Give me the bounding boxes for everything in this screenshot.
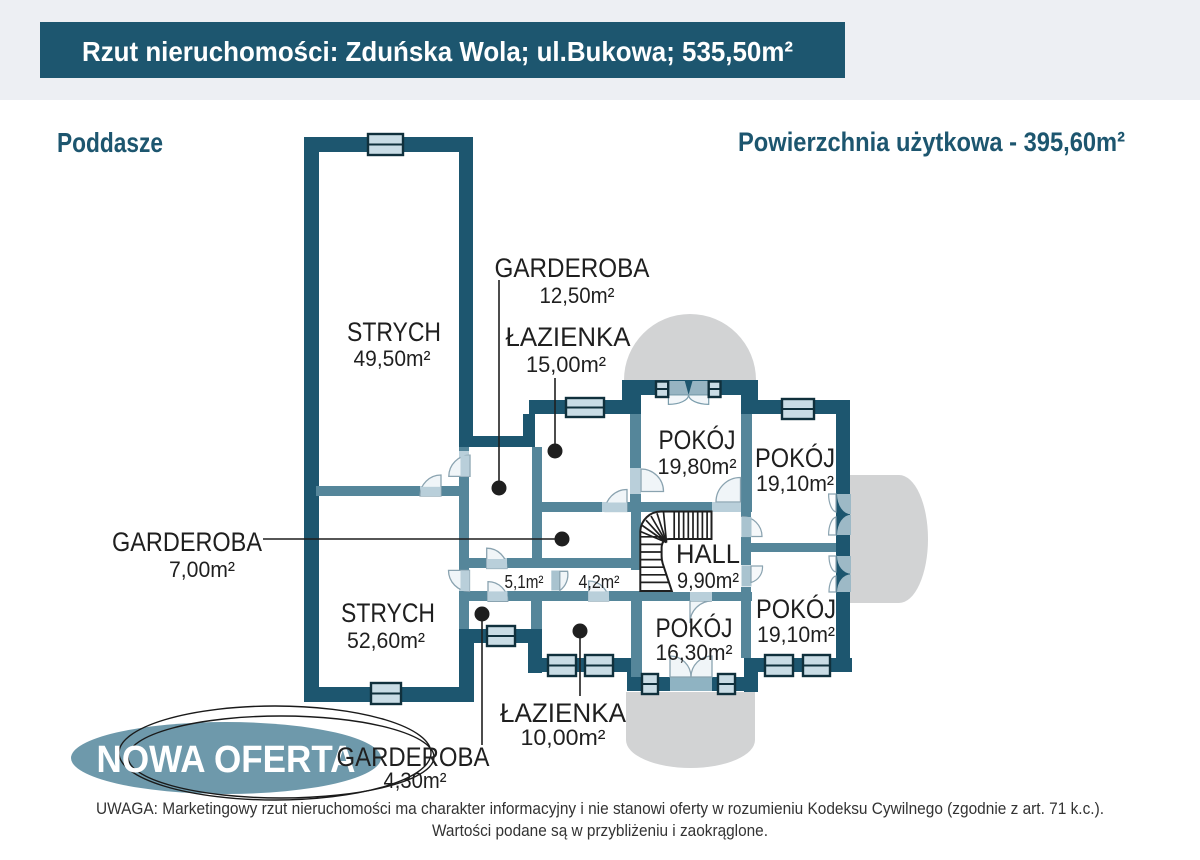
svg-text:HALL: HALL bbox=[676, 539, 740, 569]
svg-text:POKÓJ: POKÓJ bbox=[656, 612, 733, 643]
svg-text:9,90m²: 9,90m² bbox=[677, 568, 739, 593]
svg-text:15,00m²: 15,00m² bbox=[526, 352, 606, 377]
svg-text:NOWA OFERTA: NOWA OFERTA bbox=[97, 739, 356, 781]
svg-text:POKÓJ: POKÓJ bbox=[659, 424, 736, 455]
svg-text:GARDEROBA: GARDEROBA bbox=[495, 253, 650, 283]
svg-text:STRYCH: STRYCH bbox=[347, 317, 441, 347]
svg-text:49,50m²: 49,50m² bbox=[354, 346, 431, 371]
svg-text:POKÓJ: POKÓJ bbox=[755, 442, 835, 473]
svg-text:Poddasze: Poddasze bbox=[57, 127, 163, 158]
svg-text:STRYCH: STRYCH bbox=[341, 598, 435, 628]
svg-text:16,30m²: 16,30m² bbox=[656, 640, 733, 665]
svg-text:19,80m²: 19,80m² bbox=[658, 454, 737, 479]
svg-text:Wartości podane są w przybliże: Wartości podane są w przybliżeniu i zaok… bbox=[432, 821, 768, 840]
svg-text:UWAGA: Marketingowy rzut nieru: UWAGA: Marketingowy rzut nieruchomości m… bbox=[96, 799, 1104, 818]
svg-text:4,2m²: 4,2m² bbox=[579, 572, 620, 592]
svg-text:52,60m²: 52,60m² bbox=[347, 628, 425, 653]
svg-text:ŁAZIENKA: ŁAZIENKA bbox=[506, 322, 631, 352]
svg-text:Rzut nieruchomości: Zduńska Wo: Rzut nieruchomości: Zduńska Wola; ul.Buk… bbox=[82, 36, 793, 67]
svg-text:7,00m²: 7,00m² bbox=[169, 557, 235, 582]
svg-text:GARDEROBA: GARDEROBA bbox=[112, 527, 262, 557]
svg-text:Powierzchnia użytkowa - 395,60: Powierzchnia użytkowa - 395,60m² bbox=[738, 127, 1125, 157]
svg-text:19,10m²: 19,10m² bbox=[756, 471, 834, 496]
svg-text:ŁAZIENKA: ŁAZIENKA bbox=[500, 698, 626, 728]
svg-text:19,10m²: 19,10m² bbox=[757, 622, 835, 647]
svg-text:12,50m²: 12,50m² bbox=[540, 283, 615, 308]
svg-text:POKÓJ: POKÓJ bbox=[756, 593, 836, 624]
svg-text:5,1m²: 5,1m² bbox=[505, 572, 544, 592]
svg-text:4,30m²: 4,30m² bbox=[384, 768, 447, 793]
svg-text:10,00m²: 10,00m² bbox=[521, 725, 606, 750]
